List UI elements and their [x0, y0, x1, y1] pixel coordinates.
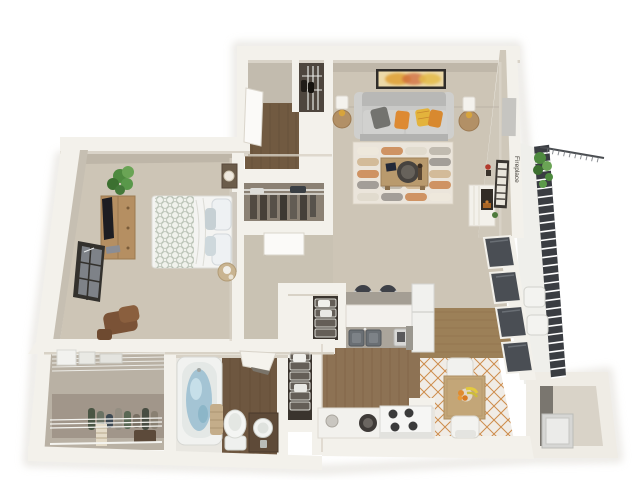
svg-text:Fireplace: Fireplace	[513, 156, 520, 183]
